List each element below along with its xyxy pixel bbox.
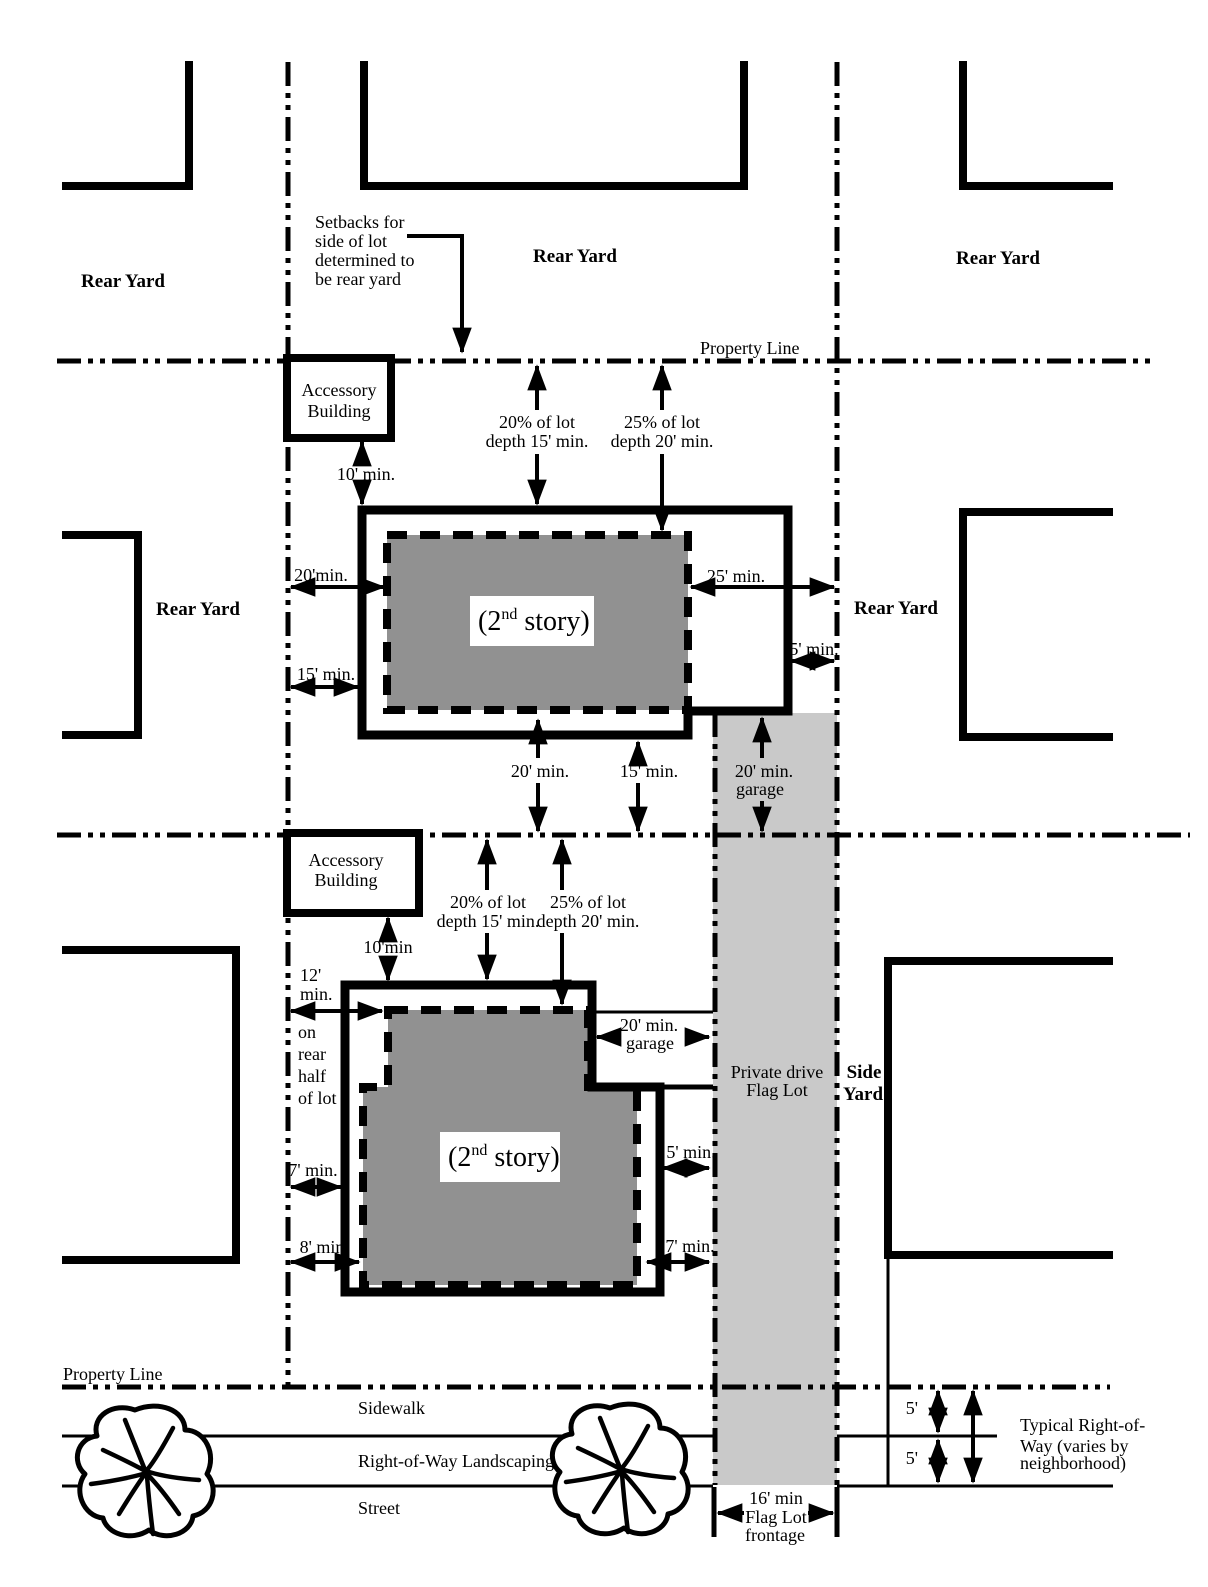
rear-yard-top-left: Rear Yard bbox=[81, 271, 165, 292]
street-label: Street bbox=[358, 1498, 400, 1518]
dim-label-10min-lower: 10'min bbox=[363, 937, 412, 957]
second-story-open: (2 bbox=[448, 1142, 471, 1173]
building-bottom-left bbox=[62, 950, 236, 1260]
dim-label-25min: 25' min. bbox=[707, 566, 765, 586]
setbacks-note-2: side of lot bbox=[315, 231, 387, 251]
rear-yard-top-right: Rear Yard bbox=[956, 248, 1040, 269]
upper-accessory-label-2: Building bbox=[307, 401, 370, 421]
dim-label-25pct-2-lower: depth 20' min. bbox=[537, 911, 640, 931]
frontage-label-1: 16' min bbox=[749, 1488, 803, 1508]
property-line-label-top: Property Line bbox=[700, 338, 799, 358]
dim-label-rear15: 15' min. bbox=[620, 761, 678, 781]
dim-label-rear20: 20' min. bbox=[511, 761, 569, 781]
setbacks-note-1: Setbacks for bbox=[315, 212, 404, 232]
upper-accessory-label-1: Accessory bbox=[302, 380, 377, 400]
upper-lot-house: (2nd story) bbox=[362, 510, 788, 735]
building-top-left bbox=[62, 61, 189, 186]
second-story-open: (2 bbox=[478, 606, 501, 637]
setbacks-note-3: determined to bbox=[315, 250, 414, 270]
setbacks-note: Setbacks for side of lot determined to b… bbox=[315, 212, 462, 352]
lower-accessory-label-1: Accessory bbox=[309, 850, 384, 870]
setbacks-note-4: be rear yard bbox=[315, 269, 401, 289]
typical-row-label-1: Typical Right-of- bbox=[1020, 1415, 1145, 1435]
landscaping-label: Right-of-Way Landscaping bbox=[358, 1451, 554, 1471]
property-line-label-bottom: Property Line bbox=[63, 1364, 162, 1384]
building-bottom-right bbox=[888, 961, 1113, 1255]
rear-yard-mid-right: Rear Yard bbox=[854, 598, 938, 619]
flag-lot-frontage-dimension: 16' min Flag Lot frontage bbox=[714, 1487, 837, 1545]
second-story-sup: nd bbox=[471, 1142, 487, 1159]
dim-label-5ft-upper: 5' bbox=[906, 1398, 918, 1418]
frontage-label-2: Flag Lot bbox=[745, 1507, 807, 1527]
dim-label-5min-lower: 5' min. bbox=[666, 1142, 715, 1162]
second-story-rest: story) bbox=[487, 1142, 559, 1173]
rear-yard-top-center: Rear Yard bbox=[533, 246, 617, 267]
building-top-center bbox=[364, 61, 744, 186]
dim-label-12-2: min. bbox=[300, 984, 333, 1004]
dim-label-onrear-3: half bbox=[298, 1066, 326, 1086]
private-drive-label-1: Private drive bbox=[731, 1062, 823, 1082]
building-top-right bbox=[963, 61, 1113, 186]
dim-label-25pct-2-upper: depth 20' min. bbox=[611, 431, 714, 451]
dim-label-8min: 8' min bbox=[300, 1237, 345, 1257]
dim-label-7min-left: 7' min. bbox=[288, 1160, 337, 1180]
side-yard-label-2: Yard bbox=[843, 1084, 884, 1105]
dim-label-20pct-1-lower: 20% of lot bbox=[450, 892, 526, 912]
second-story-rest: story) bbox=[517, 606, 589, 637]
dim-label-onrear-4: of lot bbox=[298, 1088, 337, 1108]
dim-label-20min-side: 20'min. bbox=[294, 565, 348, 585]
dim-label-25pct-1-upper: 25% of lot bbox=[624, 412, 700, 432]
dim-label-15min-side: 15' min. bbox=[297, 664, 355, 684]
dim-label-5min-upper: 5' min. bbox=[789, 639, 838, 659]
dim-label-12-1: 12' bbox=[300, 965, 321, 985]
building-mid-right bbox=[963, 512, 1113, 737]
zoning-setback-diagram: (2nd story) (2nd story) Accessory Buildi… bbox=[0, 0, 1208, 1587]
dim-label-10min-upper: 10' min. bbox=[337, 464, 395, 484]
frontage-label-3: frontage bbox=[745, 1525, 805, 1545]
building-mid-left bbox=[62, 535, 138, 735]
dim-label-7min-right: 7' min. bbox=[665, 1236, 714, 1256]
second-story-sup: nd bbox=[501, 606, 517, 623]
tree-icon bbox=[552, 1404, 688, 1534]
private-drive-label-2: Flag Lot bbox=[746, 1080, 808, 1100]
lower-second-story-label: (2nd story) bbox=[448, 1142, 560, 1173]
dim-label-25pct-1-lower: 25% of lot bbox=[550, 892, 626, 912]
rear-yard-mid-left: Rear Yard bbox=[156, 599, 240, 620]
typical-row-label-3: neighborhood) bbox=[1020, 1453, 1126, 1474]
dim-label-garage20-2-upper: garage bbox=[736, 779, 784, 799]
setbacks-leader-arrow bbox=[407, 236, 462, 352]
dim-label-5ft-lower: 5' bbox=[906, 1448, 918, 1468]
dim-label-garage20-1-upper: 20' min. bbox=[735, 761, 793, 781]
sidewalk-label: Sidewalk bbox=[358, 1398, 425, 1418]
lower-accessory-label-2: Building bbox=[314, 870, 377, 890]
dim-label-20pct-2-lower: depth 15' min. bbox=[437, 911, 540, 931]
dim-label-garage20-2-lower: garage bbox=[626, 1033, 674, 1053]
side-yard-label-1: Side bbox=[847, 1062, 882, 1083]
dim-label-onrear-2: rear bbox=[298, 1044, 326, 1064]
setback-diagram-page: (2nd story) (2nd story) Accessory Buildi… bbox=[0, 0, 1208, 1587]
upper-second-story-label: (2nd story) bbox=[478, 606, 590, 637]
tree-icon bbox=[77, 1406, 213, 1536]
dim-label-onrear-1: on bbox=[298, 1022, 316, 1042]
dim-label-20pct-1-upper: 20% of lot bbox=[499, 412, 575, 432]
dim-label-20pct-2-upper: depth 15' min. bbox=[486, 431, 589, 451]
dim-label-garage20-1-lower: 20' min. bbox=[620, 1015, 678, 1035]
